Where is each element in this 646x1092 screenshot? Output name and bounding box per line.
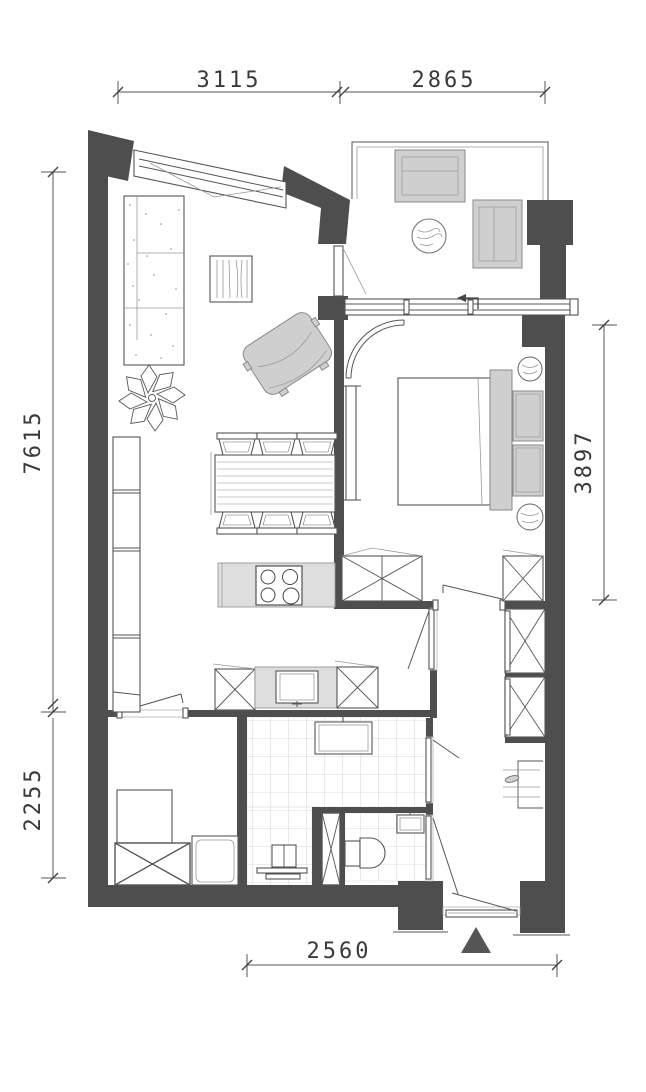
bedside-table-bottom [517, 504, 543, 530]
lounge-chair [236, 307, 341, 405]
rug [210, 256, 252, 302]
bedroom-wardrobe-left [342, 548, 422, 601]
washing-machine [192, 836, 238, 885]
bathroom-washbasin [315, 717, 372, 754]
dim-bottom: 2560 [242, 939, 562, 977]
dim-label-left-lower: 2255 [21, 767, 46, 832]
dining-table [211, 452, 335, 515]
coat-rack [503, 761, 543, 808]
storage-room-furniture [115, 790, 238, 885]
entrance-arrow-icon [461, 927, 491, 953]
nightstand-top [513, 391, 543, 441]
hall-closet-top [505, 609, 545, 673]
hall-cabinet-left [213, 664, 256, 710]
floor-plan-drawing: 3115 2865 7615 2255 [0, 0, 646, 1092]
floor-plan-page: 3115 2865 7615 2255 [0, 0, 646, 1092]
wall-shelf [113, 437, 140, 712]
nightstand-bottom [513, 445, 543, 496]
vanity-sink [255, 667, 337, 708]
sofa [124, 196, 184, 365]
bedside-table-top [518, 357, 542, 381]
storage-box [117, 790, 172, 843]
dim-top-right: 2865 [344, 68, 550, 104]
dim-label-top-left: 3115 [197, 68, 262, 93]
bedroom-furniture [341, 320, 543, 601]
hall-cabinet-right [335, 661, 379, 708]
dim-label-bottom: 2560 [307, 939, 372, 964]
living-room-furniture [113, 196, 341, 712]
kitchen-hall-door [408, 608, 437, 670]
balcony-armchair-top [395, 150, 465, 202]
dim-right: 3897 [572, 320, 617, 605]
hall-furniture [503, 609, 545, 808]
stove [256, 566, 302, 605]
dim-label-left-upper: 7615 [21, 410, 46, 475]
dim-top-left: 3115 [113, 68, 349, 104]
double-bed [398, 370, 512, 510]
dim-label-top-right: 2865 [412, 68, 477, 93]
entrance-door [443, 893, 520, 917]
dim-label-right: 3897 [572, 430, 597, 495]
bathroom-door [426, 737, 459, 803]
storage-crate [115, 843, 190, 885]
plant [119, 365, 185, 431]
bedroom-wardrobe-right [503, 550, 543, 601]
dim-left-lower: 2255 [21, 718, 66, 883]
hall-closet-bottom [505, 677, 545, 737]
dim-left-upper: 7615 [21, 167, 66, 717]
balcony-door [334, 246, 366, 296]
duct-shaft [322, 813, 340, 885]
bedroom-door [433, 585, 505, 610]
balcony-armchair-right [473, 200, 522, 268]
bedroom-sliding-window [345, 299, 578, 315]
toilet [345, 838, 385, 868]
balcony-round-table [412, 219, 446, 253]
curved-door [346, 320, 404, 378]
balcony-furniture [395, 150, 522, 268]
